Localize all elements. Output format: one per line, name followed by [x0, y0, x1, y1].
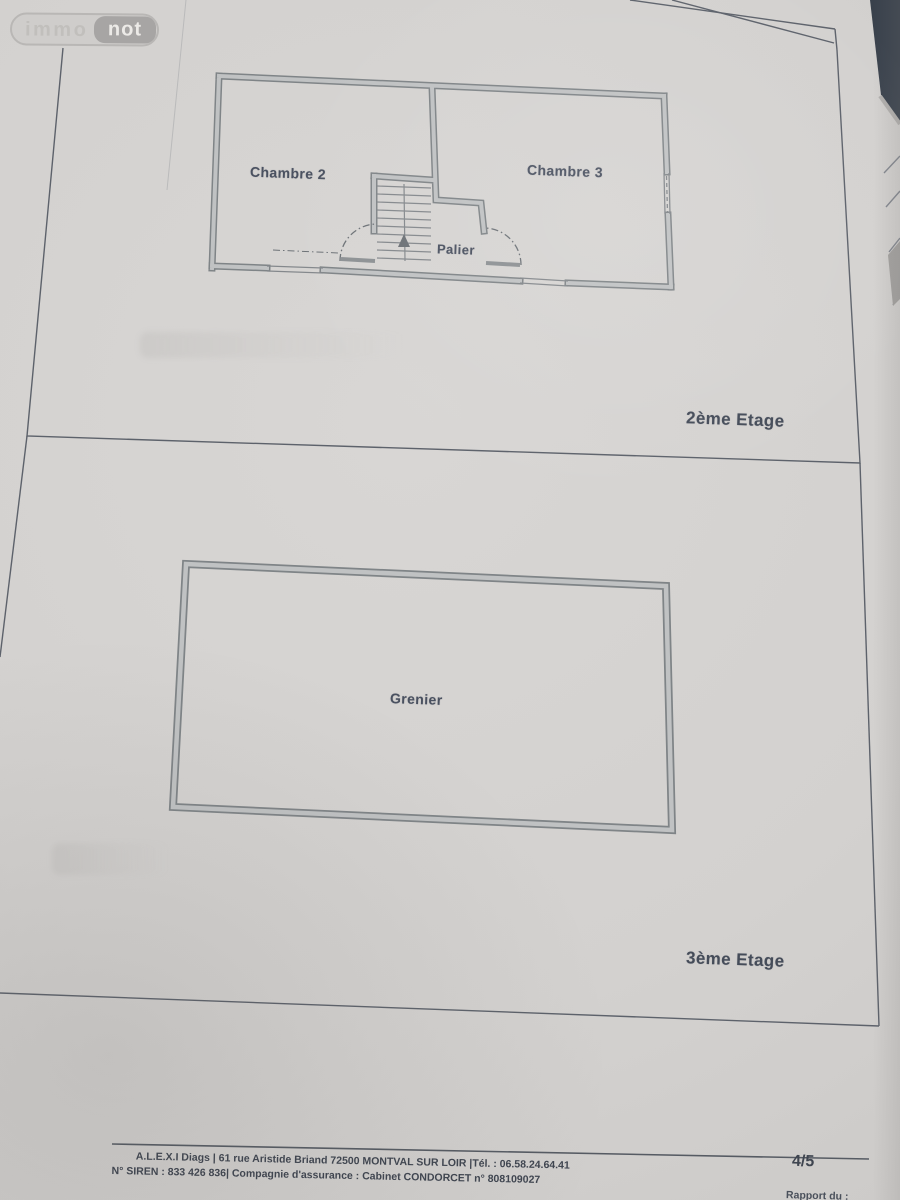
photographed-report-page: immo not — [0, 0, 900, 1200]
page-linework — [0, 0, 900, 1200]
paper-crease-line — [167, 0, 186, 190]
page-number: 4/5 — [792, 1153, 815, 1172]
room-label-palier: Palier — [437, 241, 475, 257]
dark-background-corner — [870, 0, 900, 124]
report-date-label: Rapport du : — [786, 1189, 849, 1200]
stairs-direction-arrow-icon — [398, 234, 410, 247]
stairs — [377, 184, 431, 261]
floor-label-2eme-etage: 2ème Etage — [686, 408, 785, 431]
room-label-grenier: Grenier — [390, 690, 443, 708]
room-label-chambre-3: Chambre 3 — [527, 162, 603, 181]
room-label-chambre-2: Chambre 2 — [250, 164, 326, 183]
floor-label-3eme-etage: 3ème Etage — [686, 948, 785, 971]
page-stack-edges — [884, 156, 900, 306]
panel-borders — [0, 0, 879, 1026]
